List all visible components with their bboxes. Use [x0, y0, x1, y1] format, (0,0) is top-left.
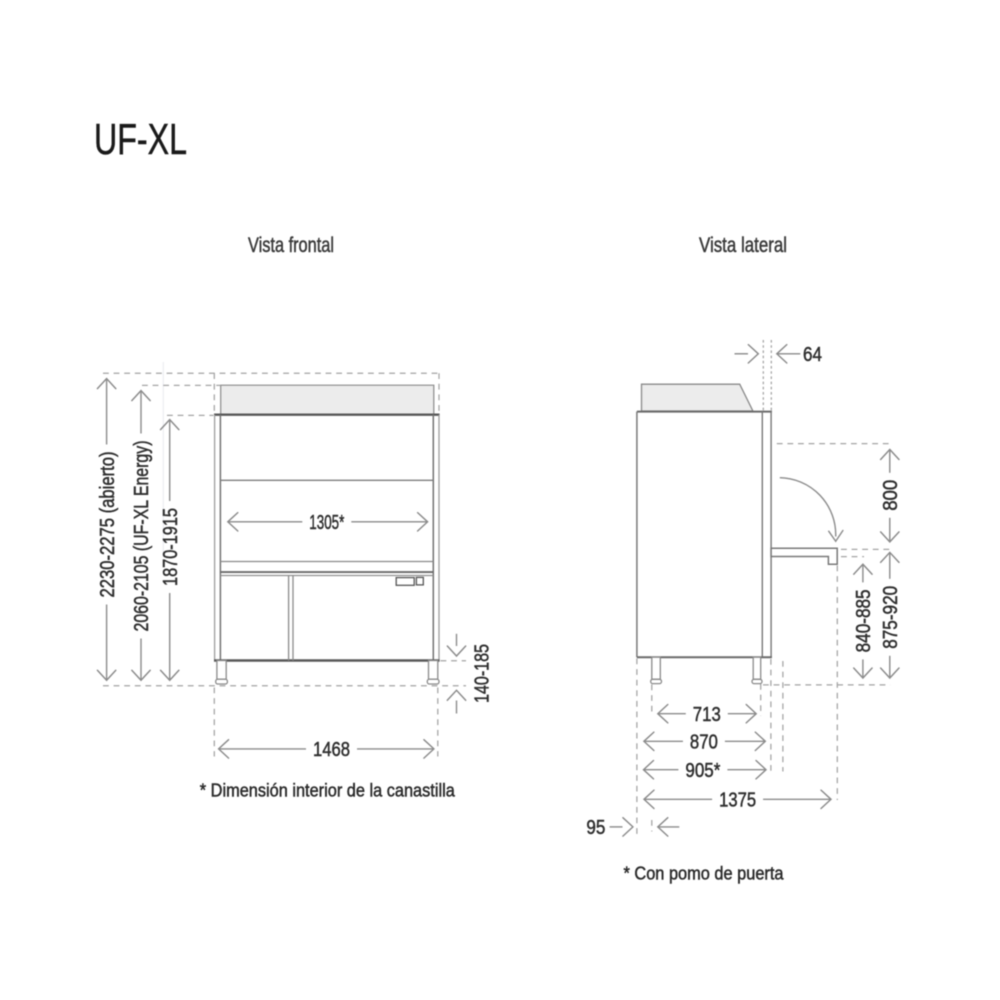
svg-text:64: 64 — [803, 344, 822, 366]
svg-text:* Dimensión interior de la can: * Dimensión interior de la canastilla — [200, 781, 456, 801]
svg-text:Vista lateral: Vista lateral — [699, 234, 787, 257]
svg-text:95: 95 — [586, 817, 605, 839]
svg-text:2060-2105 (UF-XL Energy): 2060-2105 (UF-XL Energy) — [131, 441, 153, 632]
svg-text:1870-1915: 1870-1915 — [160, 508, 182, 586]
svg-text:1375: 1375 — [719, 790, 756, 812]
svg-text:140-185: 140-185 — [472, 644, 494, 703]
svg-text:905*: 905* — [685, 760, 720, 782]
svg-text:Vista frontal: Vista frontal — [248, 234, 334, 257]
svg-text:1305*: 1305* — [309, 512, 344, 534]
svg-text:2230-2275 (abierto): 2230-2275 (abierto) — [97, 452, 119, 598]
svg-text:870: 870 — [690, 732, 718, 754]
svg-text:840-885: 840-885 — [853, 589, 875, 652]
svg-text:875-920: 875-920 — [880, 586, 902, 649]
svg-text:* Con pomo de puerta: * Con pomo de puerta — [624, 863, 785, 883]
svg-text:UF-XL: UF-XL — [94, 115, 187, 164]
svg-text:800: 800 — [880, 480, 902, 511]
svg-text:1468: 1468 — [313, 739, 350, 761]
svg-text:713: 713 — [693, 704, 721, 726]
